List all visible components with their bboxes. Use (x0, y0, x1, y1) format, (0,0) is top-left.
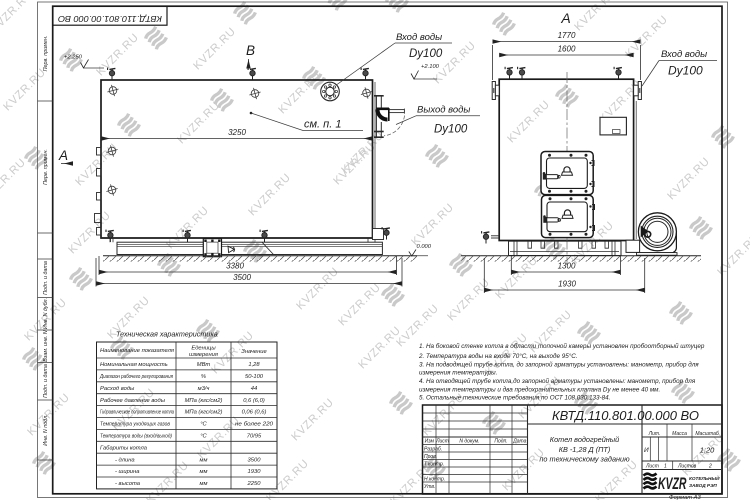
svg-text:Дата: Дата (512, 439, 526, 445)
svg-text:°С: °С (200, 434, 207, 440)
svg-text:3500: 3500 (248, 457, 262, 463)
svg-text:N докум.: N докум. (459, 439, 479, 445)
svg-text:1. На боковой стенке котла в: 1. На боковой стенке котла в области топ… (419, 342, 705, 350)
svg-text:Рабочее давление воды: Рабочее давление воды (100, 398, 166, 404)
svg-text:2. Температура воды на входе: 2. Температура воды на входе 70°С, на вы… (418, 352, 578, 360)
svg-text:Гидравлическое сопротивление к: Гидравлическое сопротивление котла (100, 410, 175, 416)
svg-text:Формат А3: Формат А3 (669, 495, 701, 500)
svg-text:Выход воды: Выход воды (417, 105, 470, 116)
svg-text:50-100: 50-100 (245, 374, 264, 380)
svg-text:0.000: 0.000 (417, 244, 432, 250)
svg-text:Масса: Масса (672, 431, 687, 437)
svg-text:не более 220: не более 220 (235, 422, 274, 428)
svg-text:1: 1 (664, 464, 667, 470)
svg-text:ЗАВОД РЭП: ЗАВОД РЭП (689, 483, 717, 488)
svg-text:Т.контр.: Т.контр. (424, 462, 444, 468)
svg-text:КОТЕЛЬНЫЙ: КОТЕЛЬНЫЙ (689, 474, 720, 481)
svg-text:Расход воды: Расход воды (100, 386, 135, 392)
svg-text:КВТД.110.801.00.000 ВО: КВТД.110.801.00.000 ВО (552, 408, 699, 423)
svg-text:Масштаб: Масштаб (695, 431, 719, 437)
svg-text:измерения температуры.: измерения температуры. (419, 369, 497, 376)
svg-text:Наименование показателя: Наименование показателя (100, 348, 174, 354)
svg-text:+2.100: +2.100 (421, 64, 440, 70)
svg-text:В: В (246, 43, 255, 58)
svg-text:Диапазон рабочего регулировани: Диапазон рабочего регулирования (99, 374, 173, 380)
svg-text:Подп. и дата: Подп. и дата (43, 364, 49, 398)
svg-text:Вход воды: Вход воды (396, 32, 442, 43)
svg-text:Значение: Значение (241, 349, 267, 355)
svg-text:Температура уходящих газов: Температура уходящих газов (100, 422, 170, 428)
svg-text:см. п. 1: см. п. 1 (304, 119, 341, 131)
svg-text:3250: 3250 (228, 128, 246, 137)
svg-text:5. Остальные технические треб: 5. Остальные технические требования по О… (419, 393, 610, 401)
svg-text:Разраб.: Разраб. (424, 447, 442, 453)
svg-text:Лит.: Лит. (648, 431, 661, 437)
svg-text:4. На отводящей трубе котла,д: 4. На отводящей трубе котла,до запорной … (419, 377, 696, 385)
svg-text:3500: 3500 (233, 273, 251, 282)
svg-text:Подп. и дата: Подп. и дата (43, 261, 49, 295)
svg-text:по техническому заданию: по техническому заданию (539, 455, 630, 464)
svg-text:Dy100: Dy100 (434, 124, 468, 136)
svg-text:2250: 2250 (247, 481, 262, 487)
svg-text:И: И (644, 447, 649, 454)
svg-text:Инв. N подл.: Инв. N подл. (43, 414, 49, 446)
svg-text:измерения температуры и два пр: измерения температуры и два предохраните… (419, 385, 660, 393)
svg-text:измерения: измерения (189, 352, 218, 358)
svg-text:Температура воды (вход/выход): Температура воды (вход/выход) (100, 434, 172, 440)
svg-text:3380: 3380 (226, 262, 244, 271)
svg-text:Утв.: Утв. (424, 484, 435, 490)
svg-text:Инв. N дубл.: Инв. N дубл. (43, 298, 49, 329)
svg-text:- длина: - длина (115, 457, 135, 463)
svg-text:мм: мм (200, 457, 208, 463)
svg-text:1600: 1600 (558, 45, 576, 54)
svg-text:+2.250: +2.250 (64, 55, 83, 61)
svg-text:0,6 (6,0): 0,6 (6,0) (243, 398, 265, 404)
svg-text:Еденицы: Еденицы (191, 346, 216, 352)
svg-text:1,28: 1,28 (248, 362, 260, 368)
svg-text:2: 2 (708, 464, 712, 470)
svg-text:МВт: МВт (197, 362, 211, 368)
svg-text:МПа (кгс/см2): МПа (кгс/см2) (185, 398, 223, 404)
svg-text:- ширина: - ширина (115, 469, 140, 475)
svg-text:KVZR: KVZR (658, 474, 687, 493)
svg-text:Лист: Лист (435, 439, 449, 445)
svg-text:44: 44 (251, 386, 257, 392)
svg-text:1300: 1300 (558, 262, 576, 271)
svg-text:- высота: - высота (115, 481, 141, 487)
svg-text:°С: °С (200, 422, 207, 428)
svg-text:%: % (201, 374, 206, 380)
svg-text:Листов: Листов (677, 464, 697, 470)
svg-text:КВ -1,28 Д (ПТ): КВ -1,28 Д (ПТ) (559, 445, 611, 454)
svg-text:МПа (кгс/см2): МПа (кгс/см2) (185, 410, 223, 416)
svg-text:Пров.: Пров. (424, 454, 437, 460)
svg-text:1:20: 1:20 (700, 446, 715, 455)
svg-text:1930: 1930 (558, 280, 576, 289)
svg-text:Вход воды: Вход воды (661, 49, 707, 60)
svg-text:Лист: Лист (645, 464, 659, 470)
svg-text:Габариты котла: Габариты котла (100, 445, 148, 451)
svg-text:Взам. инв. N: Взам. инв. N (43, 330, 49, 362)
svg-text:Перв. примен.: Перв. примен. (43, 149, 49, 185)
svg-text:0,06 (0,6): 0,06 (0,6) (242, 410, 267, 416)
svg-text:1930: 1930 (248, 469, 262, 475)
svg-text:Dy100: Dy100 (668, 64, 703, 78)
svg-text:мм: мм (200, 481, 208, 487)
svg-text:мм: мм (200, 469, 208, 475)
svg-text:3. На подводящей трубе котла,: 3. На подводящей трубе котла, до запорно… (419, 360, 699, 368)
svg-text:70/95: 70/95 (247, 434, 262, 440)
svg-text:Перв. примен.: Перв. примен. (43, 36, 49, 72)
svg-text:Dy100: Dy100 (409, 48, 443, 60)
svg-text:Номинальная мощность: Номинальная мощность (100, 362, 168, 368)
svg-text:1770: 1770 (558, 31, 576, 40)
svg-text:А: А (560, 10, 570, 26)
svg-text:Котел водогрейный: Котел водогрейный (550, 435, 619, 444)
svg-text:Изм: Изм (425, 439, 435, 445)
svg-text:м3/ч: м3/ч (198, 386, 210, 392)
svg-text:КВТД.110.801.00.000 ВО: КВТД.110.801.00.000 ВО (58, 14, 162, 24)
svg-text:А: А (58, 148, 68, 163)
svg-text:Н.контр.: Н.контр. (424, 477, 445, 483)
svg-text:Подп.: Подп. (494, 439, 507, 445)
svg-text:Техническая характеристика: Техническая характеристика (116, 330, 218, 339)
